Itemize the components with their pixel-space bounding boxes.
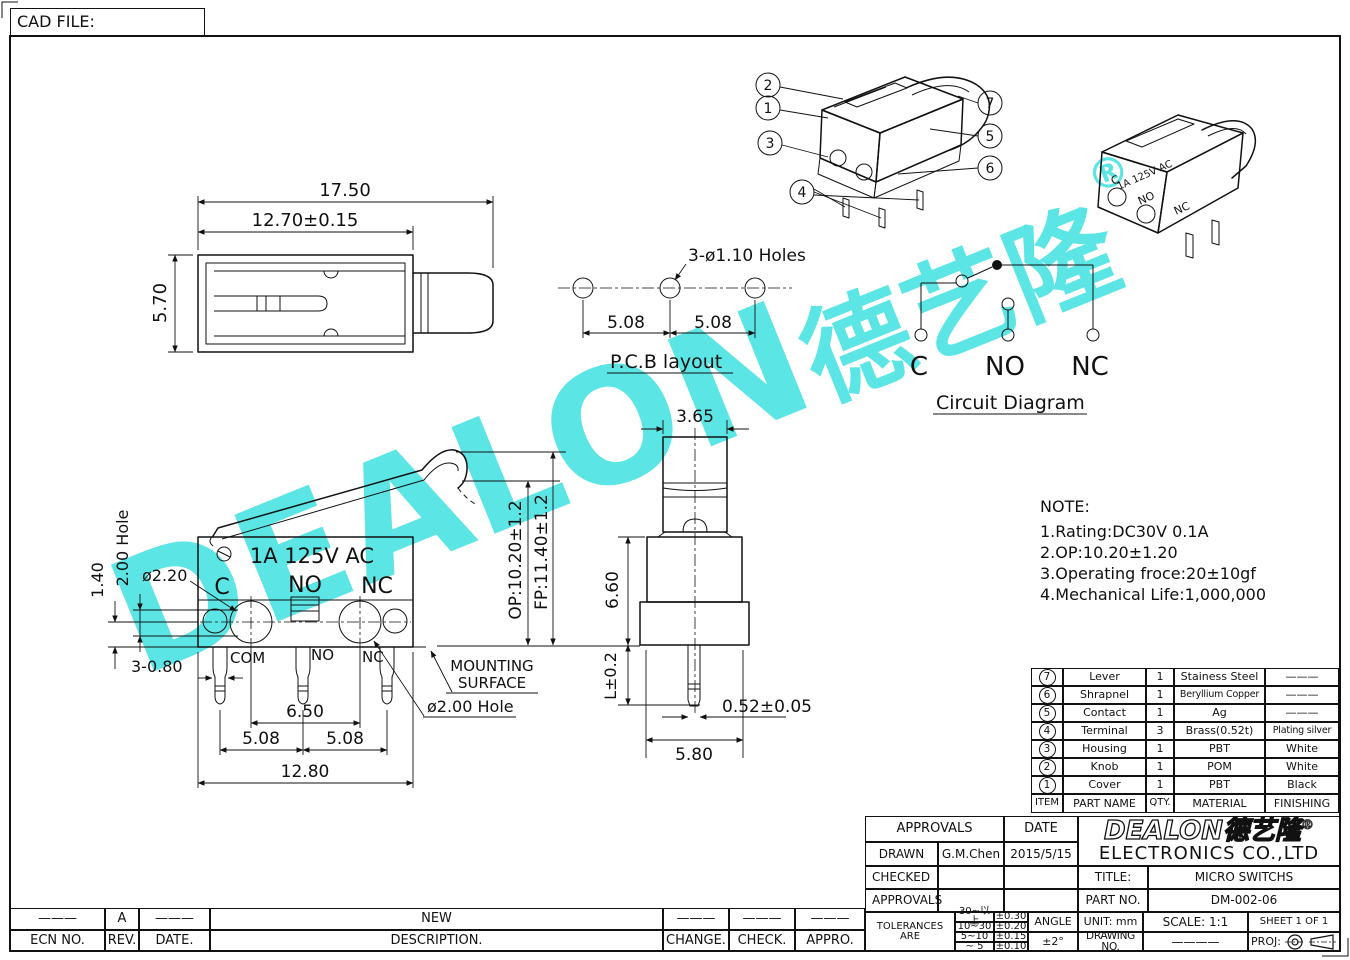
parts-material-2: POM [1174,758,1265,776]
dim-660: 6.60 [603,571,623,609]
side-view-drawing: 3.65 OP:10.20±1.2 FP:11.40±1.2 6.60 L±0.… [506,407,812,765]
company-block: DEALON德艺隆® ELECTRONICS CO.,LTD [1078,816,1340,866]
dim-hole-d200: ø2.00 Hole [427,697,514,716]
circuit-diagram-drawing: C NO NC Circuit Diagram [910,260,1109,414]
item-badge: 6 [1039,687,1056,704]
title-value: MICRO SWITCHS [1148,866,1340,889]
parts-name-5: Contact [1063,704,1146,722]
front-view-drawing: 1A 125V AC C NO NC COM NO NC 2.00 Hole 1… [88,450,640,788]
approvals-label: APPROVALS [865,889,938,912]
item-badge: 1 [1039,777,1056,794]
callout-3: 3 [766,136,775,152]
parts-name-7: Lever [1063,668,1146,686]
dim-508-right: 5.08 [326,729,364,749]
callout-6: 6 [986,161,995,177]
callout-5: 5 [986,129,995,145]
rev-header-rev: REV. [105,930,139,952]
proj-label: PROJ: [1251,936,1281,948]
rev-header-check: CHECK. [729,930,795,952]
scale-label: SCALE: 1:1 [1143,912,1248,932]
parts-qty-3: 1 [1146,740,1174,758]
dim-op: OP:10.20±1.2 [506,500,526,619]
rev-check-value: ——— [729,908,795,930]
rev-header-ecn: ECN NO. [10,930,105,952]
parts-qty-7: 1 [1146,668,1174,686]
company-logo: DEALON德艺隆® [1104,818,1314,844]
dim-365: 3.65 [676,407,714,427]
parts-material-3: PBT [1174,740,1265,758]
circuit-terminal-nc: NC [1071,352,1109,382]
top-view-drawing: 17.50 12.70±0.15 5.70 [150,180,493,352]
drawing-sheet: DEALON德艺隆® [0,0,1350,960]
dim-140: 1.40 [88,562,107,598]
rev-header-appro: APPRO. [795,930,865,952]
pin-label-com: COM [230,649,265,667]
tol-value-4: ±0.10 [994,942,1028,952]
title-label: TITLE: [1078,866,1148,889]
rev-date-value: ——— [139,908,210,930]
drawing-no-label: DRAWING NO. [1078,932,1143,952]
circuit-caption: Circuit Diagram [936,392,1085,414]
drawn-label: DRAWN [865,842,938,866]
parts-name-2: Knob [1063,758,1146,776]
dim-580: 5.80 [675,745,713,765]
rev-change-value: ——— [663,908,729,930]
isometric-view-plain: 1A 125V AC C NO NC [1098,115,1255,258]
note-line-3: 3.Operating froce:20±10gf [1040,564,1256,583]
parts-name-4: Terminal [1063,722,1146,740]
parts-material-4: Brass(0.52t) [1174,722,1265,740]
third-angle-projection-icon [1285,934,1337,950]
callout-7: 7 [986,96,995,112]
pcb-pitch-left: 5.08 [607,313,645,333]
checked-label: CHECKED [865,866,938,889]
part-no-value: DM-002-06 [1148,889,1340,912]
parts-item-1: 1 [1031,776,1063,794]
iso2-marking: 1A 125V AC [1116,159,1175,193]
note-title: NOTE: [1040,497,1090,516]
dim-650: 6.50 [286,702,324,722]
sheet-label: SHEET 1 OF 1 [1248,912,1340,932]
tolerances-label: TOLERANCES ARE [865,912,955,952]
logo-registered-icon: ® [1301,818,1314,833]
rev-header-date: DATE. [139,930,210,952]
dim-pin-length: L±0.2 [601,652,620,700]
parts-finishing-6: ——— [1265,686,1339,704]
parts-header-material: MATERIAL [1174,794,1265,813]
parts-name-6: Shrapnel [1063,686,1146,704]
drawing-no-value: ———— [1143,932,1248,952]
callout-1: 1 [764,101,773,117]
angle-label: ANGLE [1028,912,1078,932]
parts-material-6: Beryllium Copper [1174,686,1265,704]
dim-total-length: 17.50 [319,180,371,201]
iso2-label-no: NO [1136,189,1157,208]
parts-qty-5: 1 [1146,704,1174,722]
parts-header-finishing: FINISHING [1265,794,1339,813]
item-badge: 7 [1039,669,1056,686]
rev-header-change: CHANGE. [663,930,729,952]
parts-finishing-5: ——— [1265,704,1339,722]
date-header: DATE [1004,816,1078,842]
item-badge: 5 [1039,705,1056,722]
note-line-2: 2.OP:10.20±1.20 [1040,543,1178,562]
callout-2: 2 [764,78,773,94]
dim-fp: FP:11.40±1.2 [532,494,552,610]
parts-material-1: PBT [1174,776,1265,794]
dim-508-left: 5.08 [242,729,280,749]
note-line-1: 1.Rating:DC30V 0.1A [1040,522,1209,541]
rev-ecn-value: ——— [10,908,105,930]
pcb-layout-drawing: 3-ø1.10 Holes 5.08 5.08 P.C.B layout [558,246,806,373]
pcb-holes-note: 3-ø1.10 Holes [688,246,806,266]
dim-pin-width: 3-0.80 [131,657,183,676]
checked-date [1004,866,1078,889]
parts-material-5: Ag [1174,704,1265,722]
parts-name-1: Cover [1063,776,1146,794]
note-line-4: 4.Mechanical Life:1,000,000 [1040,585,1266,604]
circuit-terminal-no: NO [985,352,1025,382]
notes: NOTE: 1.Rating:DC30V 0.1A 2.OP:10.20±1.2… [1040,497,1266,604]
dim-dia-220: ø2.20 [142,566,187,585]
item-badge: 2 [1039,759,1056,776]
parts-finishing-4: Plating silver [1265,722,1339,740]
parts-qty-1: 1 [1146,776,1174,794]
parts-material-7: Stainess Steel [1174,668,1265,686]
logo-text: DEALON [1104,816,1223,846]
parts-item-2: 2 [1031,758,1063,776]
rev-header-description: DESCRIPTION. [210,930,663,952]
tol-range-4: ~ 5 [955,942,994,952]
mounting-surface-label-2: SURFACE [458,674,526,692]
part-no-label: PART NO. [1078,889,1148,912]
pcb-caption: P.C.B layout [610,351,722,373]
body-marking: 1A 125V AC [250,544,374,568]
parts-item-3: 3 [1031,740,1063,758]
parts-header-item: ITEM [1031,794,1063,813]
isometric-view-annotated [818,77,989,228]
item-badge: 3 [1039,741,1056,758]
parts-item-6: 6 [1031,686,1063,704]
rev-description-value: NEW [210,908,663,930]
circuit-terminal-c: C [910,352,928,382]
approvals-header: APPROVALS [865,816,1004,842]
checked-by [938,866,1004,889]
dim-height: 5.70 [150,283,171,323]
parts-item-5: 5 [1031,704,1063,722]
parts-qty-2: 1 [1146,758,1174,776]
unit-label: UNIT: mm [1078,912,1143,932]
dim-body-length: 12.70±0.15 [252,210,359,231]
parts-qty-4: 3 [1146,722,1174,740]
parts-item-7: 7 [1031,668,1063,686]
cad-file-label: CAD FILE: [17,14,95,31]
rev-appro-value: ——— [795,908,865,930]
projection-cell: PROJ: [1248,932,1340,952]
dim-hole-200: 2.00 Hole [113,510,132,587]
parts-finishing-7: ——— [1265,668,1339,686]
terminal-label-c: C [214,575,229,600]
approvals-date [1004,889,1078,912]
rev-letter: A [105,908,139,930]
terminal-label-nc: NC [361,574,393,599]
company-name: ELECTRONICS CO.,LTD [1099,845,1319,864]
parts-item-4: 4 [1031,722,1063,740]
angle-value: ±2° [1028,932,1078,952]
cad-file-box: CAD FILE: [10,8,205,36]
drawn-date: 2015/5/15 [1004,842,1078,866]
callout-4: 4 [798,185,807,201]
parts-header-name: PART NAME [1063,794,1146,813]
parts-finishing-3: White [1265,740,1339,758]
terminal-label-no: NO [288,573,322,598]
item-badge: 4 [1039,723,1056,740]
drawn-by: G.M.Chen [938,842,1004,866]
logo-cjk: 德艺隆 [1223,816,1301,846]
dim-1280: 12.80 [281,762,330,782]
dim-052: 0.52±0.05 [722,697,812,717]
parts-header-qty: QTY. [1146,794,1174,813]
pcb-pitch-right: 5.08 [694,313,732,333]
mounting-surface-label-1: MOUNTING [450,657,533,675]
parts-finishing-2: White [1265,758,1339,776]
parts-name-3: Housing [1063,740,1146,758]
pin-label-no: NO [311,646,334,664]
parts-finishing-1: Black [1265,776,1339,794]
parts-qty-6: 1 [1146,686,1174,704]
